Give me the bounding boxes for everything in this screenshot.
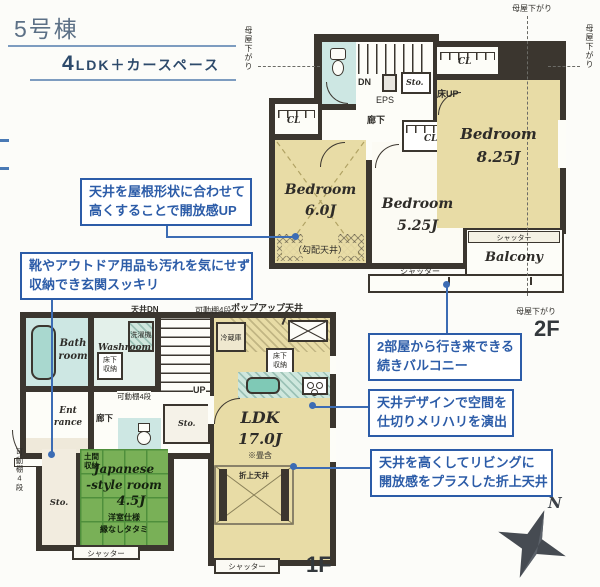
leader-ceiling-h	[315, 406, 368, 408]
leader-dot	[48, 451, 55, 458]
annotation-living-ceiling-line2: 開放感をプラスした折上天井	[379, 473, 544, 492]
annotation-ceiling-design: 天井デザインで空間を 仕切りメリハリを演出	[368, 389, 514, 437]
hallway-label-1f: 廊下	[96, 412, 113, 424]
shelf-label: 可動棚4段	[117, 391, 151, 402]
bath-label-1: Bath	[56, 338, 90, 349]
label-cl: CL	[424, 134, 438, 144]
coffered-label: 折上天井	[214, 470, 294, 481]
bedroom6-name: Bedroom	[278, 182, 363, 198]
shelf-label: 可動棚4段	[14, 448, 25, 492]
label-eaves: 母屋下がり	[584, 24, 595, 69]
underfloor-label-2: 収納	[97, 364, 123, 374]
shelf-label: 可動棚4段	[195, 305, 231, 316]
shutter-label: シャッター	[72, 548, 140, 559]
eave-dashed-line	[548, 66, 580, 67]
compass-north-label: N	[548, 494, 562, 512]
annotation-balcony-line1: 2部屋から行き来できる	[377, 338, 513, 357]
label-sto-2f: Sto.	[406, 77, 423, 87]
fridge-label: 冷蔵庫	[216, 333, 246, 343]
annotation-ceiling-design-line2: 仕切りメリハリを演出	[377, 413, 505, 432]
label-cl: CL	[287, 116, 301, 126]
balcony-label: Balcony	[468, 250, 560, 265]
label-dn: DN	[358, 77, 371, 87]
bedroom525-size: 5.25J	[375, 218, 460, 234]
compass: N	[492, 492, 572, 587]
label-eaves: 母屋下がり	[243, 26, 254, 71]
popup-ceiling-label: ポップアップ天井	[231, 301, 303, 314]
toilet-icon	[137, 431, 151, 445]
floorplan-flyer: 5号棟 4LDK＋カースペース	[0, 0, 600, 587]
label-hallway-2f: 廊下	[367, 113, 385, 126]
sto-label-understairs: Sto.	[178, 418, 195, 428]
leader-balcony-v	[446, 287, 448, 333]
shutter-label: シャッター	[214, 561, 280, 572]
leader-dot	[292, 233, 299, 240]
pantry-xbox	[288, 320, 328, 342]
leader-coffered-h	[296, 467, 370, 469]
floor1-label: 1F	[306, 552, 332, 578]
sto-label-bottomleft: Sto.	[42, 498, 76, 508]
bedroom6-size: 6.0J	[278, 203, 363, 219]
ceiling-dn-label: 天井DN	[131, 304, 159, 315]
bedroom525-name: Bedroom	[375, 196, 460, 212]
annotation-roof-line1: 天井を屋根形状に合わせて	[89, 183, 243, 202]
annotation-living-ceiling: 天井を高くしてリビングに 開放感をプラスした折上天井	[370, 449, 553, 497]
toilet-icon	[332, 60, 344, 76]
ldk-size: 17.0J	[214, 430, 306, 448]
underfloor-label-k2: 収納	[266, 360, 294, 370]
eave-dashed-line	[258, 66, 320, 67]
window-gap	[330, 356, 336, 374]
annotation-roof-line2: 高くすることで開放感UP	[89, 202, 243, 221]
label-eps: EPS	[376, 95, 394, 105]
japanese-label-2: -style room	[84, 478, 164, 492]
ldk-name: LDK	[214, 408, 306, 427]
label-shutter: シャッター	[400, 266, 440, 277]
leader-roof-h	[166, 236, 295, 238]
annotation-entrance: 靴やアウトドア用品も汚れを気にせず 収納でき玄関スッキリ	[20, 252, 253, 300]
wall-segment	[322, 104, 356, 107]
japanese-size: 4.5J	[96, 494, 166, 509]
japanese-label-1: Japanese	[84, 462, 164, 476]
entrance-label-2: rance	[50, 418, 86, 428]
kitchen-sink	[246, 377, 280, 394]
label-eaves: 母屋下がり	[512, 3, 552, 14]
eps-shaft	[382, 74, 397, 92]
window-gap	[330, 428, 336, 462]
railing-post	[530, 277, 532, 285]
stove	[302, 377, 328, 395]
room-sto-bottomleft	[42, 449, 76, 545]
annotation-entrance-line2: 収納でき玄関スッキリ	[29, 276, 244, 295]
stairs-2f	[358, 44, 430, 74]
leader-dot	[309, 402, 316, 409]
leader-dot	[290, 463, 297, 470]
annotation-ceiling-design-line1: 天井デザインで空間を	[377, 394, 505, 413]
bedroom825-size: 8.25J	[440, 148, 557, 166]
entrance-label-1: Ent	[50, 406, 86, 416]
leader-entrance-v	[51, 292, 53, 455]
japanese-note-2: 縁なしタタミ	[84, 524, 164, 535]
label-cl: CL	[458, 57, 472, 67]
annotation-balcony: 2部屋から行き来できる 続きバルコニー	[368, 333, 522, 381]
stairs-1f	[161, 318, 210, 392]
bedroom825-name: Bedroom	[440, 125, 557, 143]
toilet-icon	[330, 48, 346, 60]
japanese-note-1: 洋室仕様	[84, 512, 164, 523]
window-gap	[558, 120, 566, 168]
annotation-roof: 天井を屋根形状に合わせて 高くすることで開放感UP	[80, 178, 252, 226]
washroom-label: Washroom	[94, 343, 155, 353]
annotation-entrance-line1: 靴やアウトドア用品も汚れを気にせず	[29, 257, 244, 276]
annotation-living-ceiling-line1: 天井を高くしてリビングに	[379, 454, 544, 473]
leader-dot	[443, 281, 450, 288]
annotation-balcony-line2: 続きバルコニー	[377, 357, 513, 376]
label-floor-up: 床UP	[437, 87, 459, 100]
washer-label: 洗濯機	[128, 330, 154, 340]
up-label: UP	[193, 385, 206, 395]
label-shutter: シャッター	[468, 233, 560, 243]
bath-label-2: room	[56, 351, 90, 362]
ldk-note: ※畳含	[214, 450, 306, 461]
bedroom6-note: （勾配天井）	[282, 243, 358, 256]
